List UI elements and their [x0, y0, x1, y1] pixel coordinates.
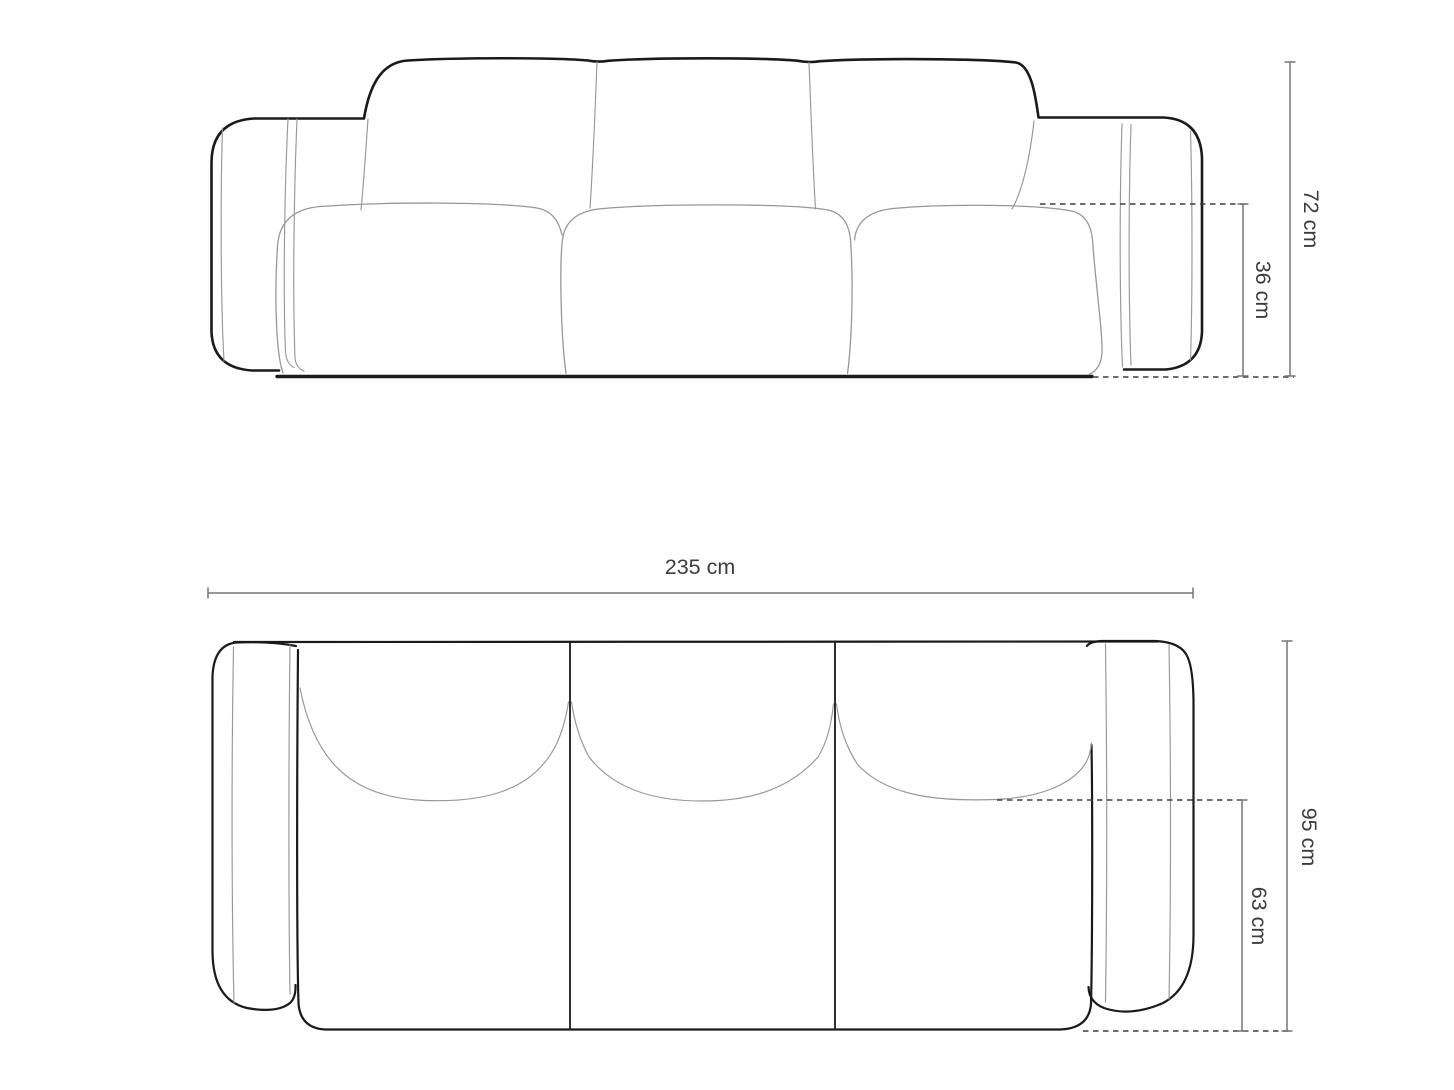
sofa-front-view-drawing: 72 cm 36 cm — [212, 58, 1324, 377]
height-dimension-line — [1285, 62, 1296, 376]
plan-armrest-seam-lines — [232, 644, 1170, 1003]
seat-depth-dimension-line — [1237, 800, 1248, 1031]
depth-dimension-line — [1282, 641, 1293, 1031]
seat-depth-dimension-label: 63 cm — [1247, 887, 1271, 946]
front-silhouette-path — [212, 58, 1203, 370]
plan-back-cushion-curves — [300, 688, 1092, 801]
diagram-canvas: 72 cm 36 cm — [0, 0, 1454, 1090]
sofa-top-view-drawing: 235 cm 95 cm 63 cm — [208, 555, 1321, 1031]
plan-top-edge — [234, 642, 1158, 643]
sofa-dimension-diagram: 72 cm 36 cm — [0, 0, 1454, 1090]
height-dimension-label: 72 cm — [1299, 190, 1323, 249]
plan-seat-outline — [297, 650, 1092, 1030]
top-reference-group — [997, 800, 1291, 1031]
width-dimension-label: 235 cm — [665, 555, 736, 579]
top-dimension-group — [208, 588, 1293, 1032]
seat-height-dimension-line — [1238, 204, 1249, 376]
depth-dimension-label: 95 cm — [1297, 808, 1321, 867]
plan-seat-divider-lines — [570, 642, 835, 1029]
plan-left-armrest-path — [213, 642, 297, 1010]
front-dimension-group — [1238, 62, 1296, 376]
top-outline-group — [213, 641, 1194, 1030]
seat-height-dimension-label: 36 cm — [1251, 261, 1275, 320]
width-dimension-line — [208, 588, 1193, 599]
top-seam-group — [232, 644, 1170, 1003]
plan-right-armrest-path — [1087, 641, 1194, 1012]
front-outline-group — [212, 58, 1203, 376]
front-seat-cushion-outlines — [276, 203, 1102, 374]
